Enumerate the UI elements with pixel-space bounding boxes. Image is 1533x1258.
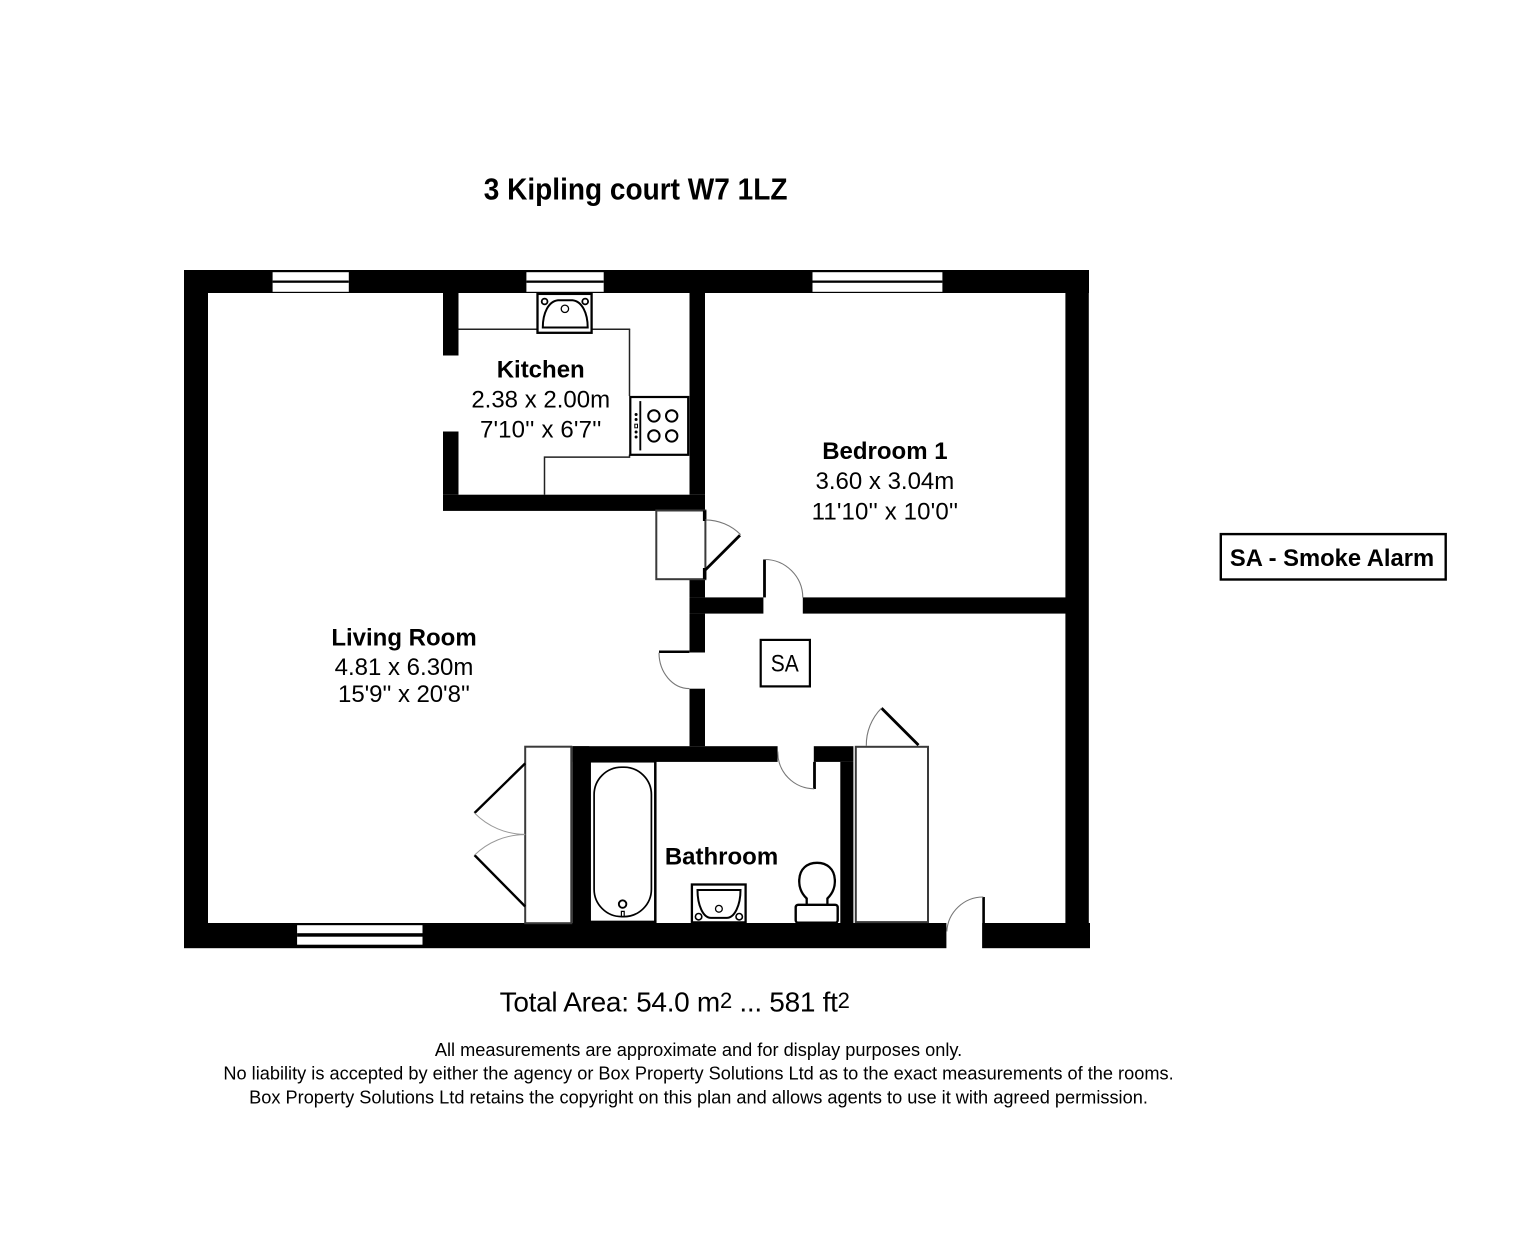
svg-text:Living Room: Living Room xyxy=(331,625,476,652)
svg-text:Kitchen: Kitchen xyxy=(497,357,585,384)
svg-text:11'10'' x 10'0'': 11'10'' x 10'0'' xyxy=(812,498,959,525)
svg-text:2.38 x 2.00m: 2.38 x 2.00m xyxy=(471,387,610,414)
svg-text:SA: SA xyxy=(771,651,799,678)
svg-text:Bedroom 1: Bedroom 1 xyxy=(822,438,947,465)
svg-text:Bathroom: Bathroom xyxy=(665,844,778,871)
svg-text:7'10'' x 6'7'': 7'10'' x 6'7'' xyxy=(480,417,602,444)
svg-text:Box Property Solutions Ltd ret: Box Property Solutions Ltd retains the c… xyxy=(249,1087,1148,1107)
svg-text:3 Kipling court W7 1LZ: 3 Kipling court W7 1LZ xyxy=(484,172,788,206)
svg-text:SA - Smoke Alarm: SA - Smoke Alarm xyxy=(1230,545,1434,572)
svg-text:4.81 x 6.30m: 4.81 x 6.30m xyxy=(335,654,474,681)
svg-text:15'9'' x 20'8'': 15'9'' x 20'8'' xyxy=(338,681,470,708)
svg-text:Total Area: 54.0 m2 ... 581 ft: Total Area: 54.0 m2 ... 581 ft2 xyxy=(500,987,850,1018)
svg-text:No liability is accepted by ei: No liability is accepted by either the a… xyxy=(223,1064,1173,1084)
svg-text:All measurements are approxima: All measurements are approximate and for… xyxy=(435,1040,962,1060)
svg-text:3.60 x 3.04m: 3.60 x 3.04m xyxy=(816,468,955,495)
